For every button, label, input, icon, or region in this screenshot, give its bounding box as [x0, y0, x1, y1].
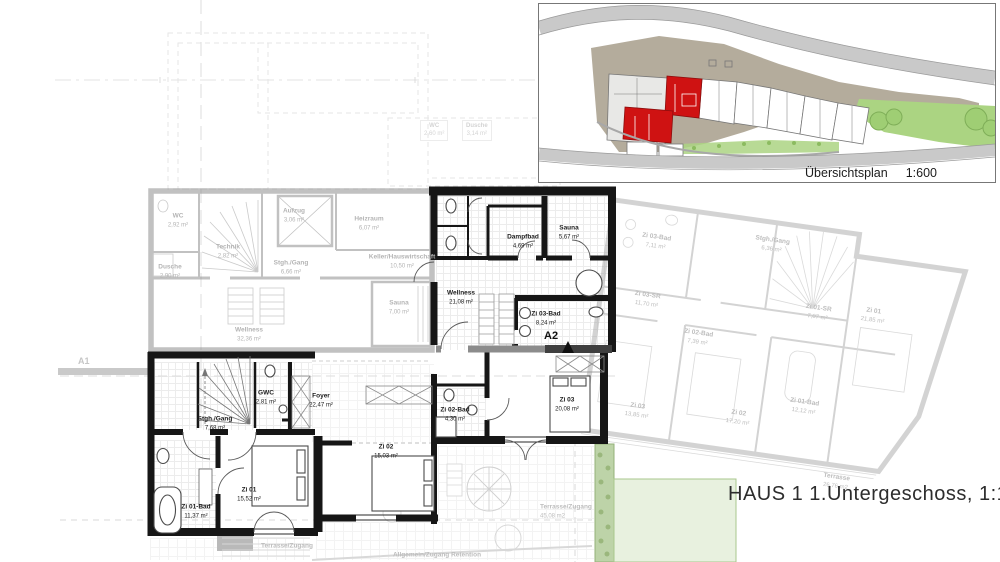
section-line-a2 [545, 345, 612, 353]
room-label-zi03: Zi 0320,08 m² [555, 397, 579, 414]
room-label-foyer: Foyer22,47 m² [309, 393, 333, 410]
section-marker-a1: A1 [78, 356, 90, 366]
right-room-label-zi01-sr: Zi 01-SR7,07 m² [804, 303, 832, 323]
drawing-title: HAUS 1 1.Untergeschoss, 1:100 [728, 483, 1000, 506]
parasol-icon [467, 467, 511, 511]
ghost-room-label-wc: WC2,60 m² [420, 120, 448, 141]
room-label-zi03-bad: Zi 03-Bad8,24 m² [531, 311, 560, 328]
right-room-label-zi03: Zi 0313,85 m² [624, 401, 650, 421]
right-room-label-zi01: Zi 0121,85 m² [860, 306, 886, 326]
left-room-label-dusche: Dusche2,90 m² [158, 264, 181, 281]
room-label-zi02: Zi 0215,03 m² [374, 444, 398, 461]
left-room-label-sauna: Sauna7,00 m² [389, 300, 409, 317]
room-label-gwc: GWC2,81 m² [256, 390, 276, 407]
room-label-zi02-bad: Zi 02-Bad4,30 m² [440, 407, 469, 424]
section-marker-a2: A2 [544, 330, 558, 342]
left-room-label-wellness: Wellness32,36 m² [235, 327, 263, 344]
floor-plan-canvas: Dampfbad4,69 m² Sauna5,67 m² Wellness21,… [0, 0, 1000, 562]
room-label-stgh-gang: Stgh./Gang7,68 m² [198, 416, 233, 433]
left-room-label-wc: WC2,92 m² [168, 213, 188, 230]
upper-floor-ghost-lines [55, 0, 612, 428]
overview-scale: 1:600 [906, 166, 937, 180]
overview-inset: Übersichtsplan1:600 [538, 3, 996, 183]
left-room-label-technik: Technik2,82 m² [216, 244, 240, 261]
lawn-area [614, 479, 736, 562]
wellness-loungers [479, 294, 514, 344]
room-label-dampfbad: Dampfbad4,69 m² [507, 234, 539, 251]
left-room-label-aufzug: Aufzug3,06 m² [283, 208, 305, 225]
room-label-wellness: Wellness21,08 m² [447, 290, 475, 307]
overview-caption-text: Übersichtsplan [805, 166, 888, 180]
room-label-sauna: Sauna5,67 m² [559, 225, 579, 242]
right-room-label-zi02: Zi 0217,20 m² [725, 408, 751, 428]
outdoor-label-terrasse-zugang-main: Terrasse/Zugang45,08 m2 [540, 504, 592, 521]
outdoor-label-terrasse-zugang-west: Terrasse/Zugang [261, 543, 313, 552]
left-room-label-keller: Keller/Hauswirtschaft10,50 m² [369, 254, 435, 271]
left-room-label-stgh-gang: Stgh./Gang6,66 m² [274, 260, 309, 277]
room-label-zi01-bad: Zi 01-Bad11,37 m² [181, 504, 210, 521]
hedge-strip [595, 444, 614, 562]
overview-caption: Übersichtsplan1:600 [805, 166, 937, 180]
ghost-room-label-dusche: Dusche3,14 m² [462, 120, 492, 141]
stair-main [198, 356, 250, 424]
right-room-label-zi03-sr: Zi 03-SR11,70 m² [633, 290, 661, 310]
section-line-a1 [58, 368, 148, 375]
room-label-zi01: Zi 0115,52 m² [237, 487, 261, 504]
outdoor-label-allgemein-zugang: Allgemein/Zugang Retention [393, 552, 481, 561]
left-room-label-heizraum: Heizraum6,07 m² [354, 216, 383, 233]
site-plan [539, 4, 995, 182]
